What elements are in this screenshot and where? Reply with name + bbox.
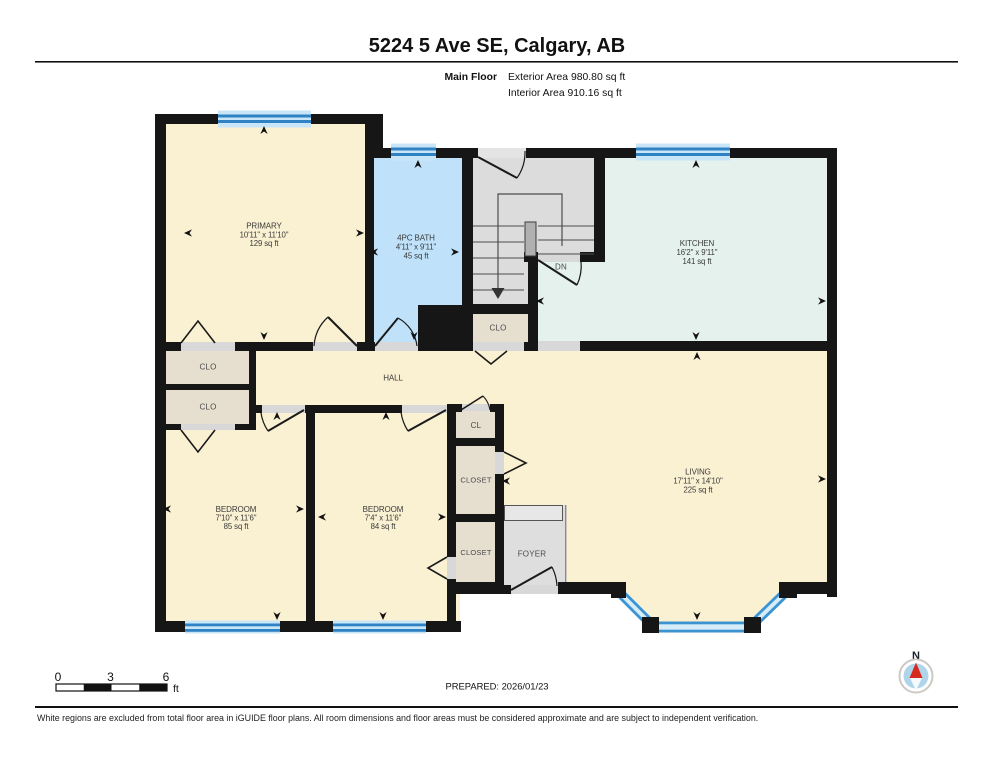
svg-text:FOYER: FOYER xyxy=(518,550,547,559)
svg-text:141 sq ft: 141 sq ft xyxy=(682,257,712,266)
svg-text:Interior Area 910.16 sq ft: Interior Area 910.16 sq ft xyxy=(508,88,622,99)
svg-text:ft: ft xyxy=(173,683,179,695)
svg-text:5224 5 Ave SE, Calgary, AB: 5224 5 Ave SE, Calgary, AB xyxy=(369,35,625,57)
svg-text:HALL: HALL xyxy=(383,374,403,383)
svg-text:CLO: CLO xyxy=(199,363,216,372)
svg-text:CLO: CLO xyxy=(199,403,216,412)
svg-text:3: 3 xyxy=(107,670,114,684)
svg-text:0: 0 xyxy=(55,670,62,684)
svg-text:84 sq ft: 84 sq ft xyxy=(371,522,397,531)
svg-text:85 sq ft: 85 sq ft xyxy=(224,522,250,531)
svg-text:225 sq ft: 225 sq ft xyxy=(683,486,713,495)
svg-text:17'11" x 14'10": 17'11" x 14'10" xyxy=(673,477,723,486)
svg-text:Main Floor: Main Floor xyxy=(444,72,497,83)
svg-text:6: 6 xyxy=(163,670,170,684)
svg-text:129 sq ft: 129 sq ft xyxy=(249,239,279,248)
svg-text:KITCHEN: KITCHEN xyxy=(680,239,715,248)
svg-text:4'11" x 9'11": 4'11" x 9'11" xyxy=(396,243,437,252)
svg-text:PREPARED: 2026/01/23: PREPARED: 2026/01/23 xyxy=(445,681,548,692)
svg-text:45 sq ft: 45 sq ft xyxy=(404,252,430,261)
svg-text:LIVING: LIVING xyxy=(685,468,711,477)
svg-text:White regions are excluded fro: White regions are excluded from total fl… xyxy=(37,713,758,723)
svg-text:4PC BATH: 4PC BATH xyxy=(397,234,435,243)
svg-text:CLOSET: CLOSET xyxy=(460,548,491,557)
svg-text:CLO: CLO xyxy=(489,324,506,333)
svg-text:CL: CL xyxy=(471,421,482,430)
svg-text:16'2" x 9'11": 16'2" x 9'11" xyxy=(677,248,718,257)
svg-text:DN: DN xyxy=(555,263,567,272)
svg-text:Exterior Area 980.80 sq ft: Exterior Area 980.80 sq ft xyxy=(508,72,625,83)
svg-text:PRIMARY: PRIMARY xyxy=(246,222,282,231)
svg-text:CLOSET: CLOSET xyxy=(460,476,491,485)
